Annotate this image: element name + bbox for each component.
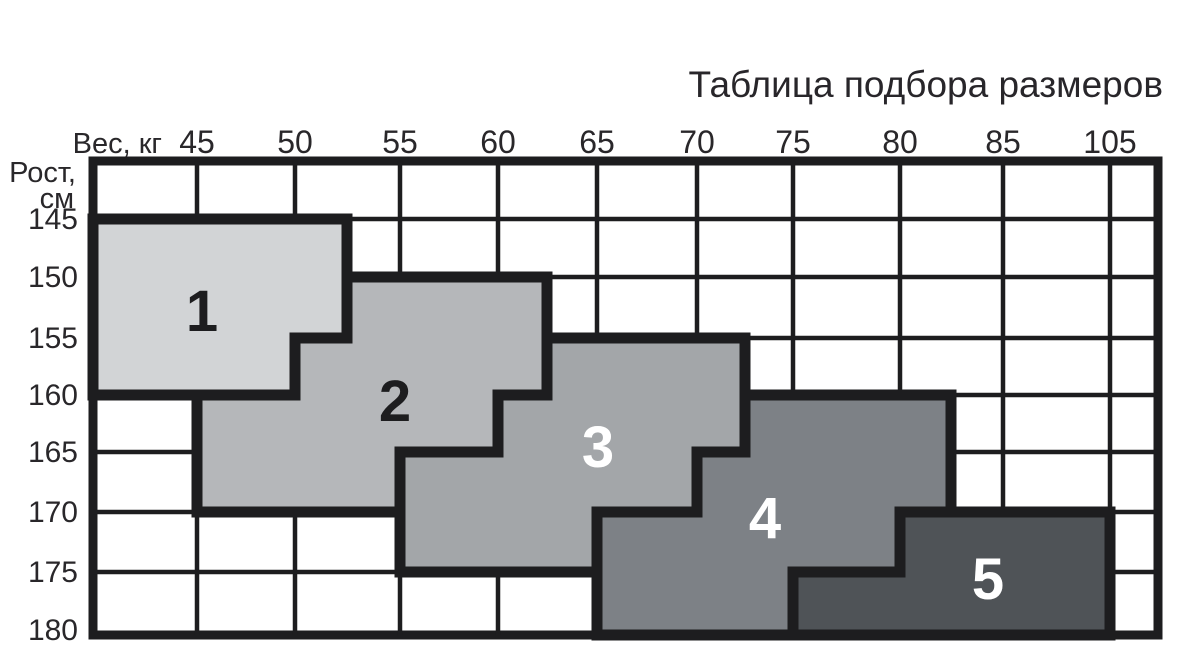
size-region-3-label: 3 (582, 415, 614, 480)
size-chart-canvas: Таблица подбора размеров (0, 0, 1200, 658)
height-tick-label: 150 (28, 261, 78, 294)
weight-tick-label: 70 (679, 124, 715, 160)
height-axis: Рост, см 145 150 155 160 165 170 175 180 (9, 157, 78, 647)
size-region-4-label: 4 (749, 486, 781, 551)
weight-tick-label: 60 (480, 124, 516, 160)
height-tick-label: 145 (28, 203, 78, 236)
chart-title: Таблица подбора размеров (689, 64, 1163, 105)
size-region-2-label: 2 (379, 369, 411, 434)
height-tick-label: 175 (28, 556, 78, 589)
height-tick-label: 160 (28, 379, 78, 412)
weight-tick-label: 80 (882, 124, 918, 160)
weight-axis-caption: Вес, кг (73, 128, 162, 160)
height-tick-label: 170 (28, 496, 78, 529)
weight-axis: Вес, кг 45 50 55 60 65 70 75 80 85 105 (73, 124, 1137, 160)
weight-tick-label: 85 (985, 124, 1021, 160)
weight-tick-label: 75 (775, 124, 811, 160)
weight-tick-label: 65 (579, 124, 615, 160)
weight-tick-label: 105 (1083, 124, 1136, 160)
size-region-1-label: 1 (186, 279, 218, 344)
weight-tick-label: 45 (179, 124, 215, 160)
height-tick-label: 165 (28, 436, 78, 469)
weight-tick-label: 55 (382, 124, 418, 160)
height-tick-label: 180 (28, 614, 78, 647)
size-region-5-label: 5 (972, 547, 1004, 612)
size-selection-chart: Таблица подбора размеров (0, 0, 1200, 658)
weight-tick-label: 50 (277, 124, 313, 160)
height-tick-label: 155 (28, 322, 78, 355)
